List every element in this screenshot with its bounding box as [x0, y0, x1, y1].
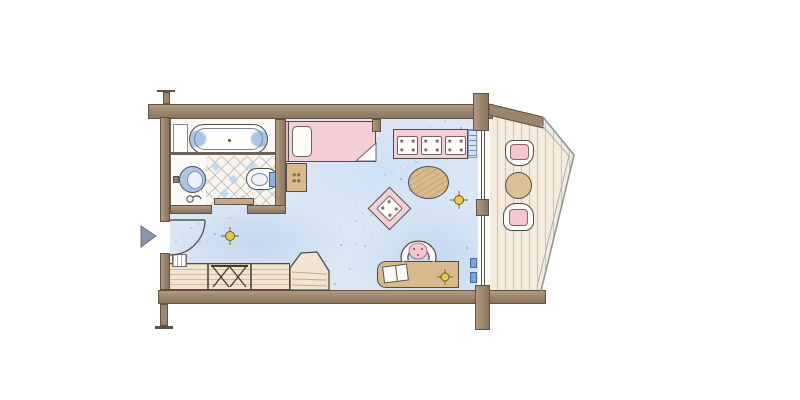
tub-platform-edge	[170, 152, 276, 155]
carpet-speckle	[415, 161, 417, 163]
door-fitting	[470, 258, 477, 268]
carpet-speckle	[199, 241, 201, 243]
carpet-speckle	[407, 167, 408, 168]
bathroom-east-wall	[275, 119, 286, 214]
carpet-speckle	[214, 233, 216, 235]
carpet-speckle	[400, 178, 402, 180]
carpet-speckle	[237, 220, 239, 222]
carpet-speckle	[190, 227, 192, 229]
carpet-speckle	[362, 213, 363, 214]
east-wall-mid-stub	[476, 199, 489, 216]
carpet-speckle	[349, 268, 351, 270]
washbasin	[179, 166, 206, 193]
carpet-speckle	[310, 268, 312, 270]
sideboard-divider	[250, 264, 252, 289]
toilet-bowl	[251, 173, 268, 186]
carpet-speckle	[213, 216, 215, 218]
balcony-glass-door-lower	[481, 216, 485, 285]
washbasin-tap	[173, 176, 179, 183]
carpet-speckle	[191, 248, 192, 249]
column-tick-cap	[157, 90, 175, 92]
carpet-speckle	[468, 120, 470, 122]
balcony-table	[505, 172, 532, 199]
carpet-speckle	[339, 228, 341, 230]
balcony-glass-door-upper	[481, 131, 485, 199]
carpet-speckle	[467, 270, 468, 271]
bathtub-drain	[228, 139, 231, 142]
washbasin-bowl	[187, 171, 203, 189]
west-wall-lower	[160, 253, 170, 290]
carpet-speckle	[295, 281, 297, 283]
balcony-deck	[489, 104, 575, 292]
carpet-speckle	[229, 217, 231, 219]
carpet-speckle	[222, 234, 224, 236]
sideboard	[168, 263, 290, 290]
sofa-cushion	[397, 136, 418, 155]
carpet-speckle	[369, 187, 371, 189]
carpet-speckle	[317, 252, 318, 253]
carpet-speckle	[302, 275, 303, 276]
carpet-speckle	[221, 207, 222, 208]
carpet-speckle	[355, 220, 357, 222]
sideboard-divider	[207, 264, 209, 289]
bed-pillow	[292, 126, 312, 157]
column-tick-top-left	[163, 92, 170, 104]
east-wall-bottom-column	[475, 285, 490, 330]
carpet-speckle	[206, 225, 207, 226]
bathroom-south-wall-right	[247, 205, 286, 214]
carpet-speckle	[392, 173, 393, 174]
coffee-table	[408, 166, 449, 199]
bed	[283, 121, 376, 162]
carpet-speckle	[384, 174, 386, 176]
carpet-speckle	[356, 243, 357, 244]
carpet-speckle	[175, 241, 177, 243]
carpet-speckle	[341, 255, 342, 256]
carpet-speckle	[318, 267, 320, 269]
carpet-speckle	[446, 159, 447, 160]
north-wall	[148, 104, 493, 119]
entry-mat	[172, 254, 187, 267]
radiator	[468, 129, 477, 158]
carpet-speckle	[333, 261, 335, 263]
open-book	[382, 264, 409, 284]
bathroom-sliding-door	[214, 198, 254, 205]
tile-accent	[220, 189, 230, 199]
sofa	[393, 129, 468, 159]
carpet-speckle	[399, 166, 401, 168]
column-tick-bottom-left	[160, 304, 168, 326]
balcony-chair-north	[505, 140, 534, 166]
tile-accent	[211, 162, 221, 172]
carpet-speckle	[198, 223, 200, 225]
carpet-speckle	[466, 247, 468, 249]
sofa-cushion	[421, 136, 442, 155]
carpet-speckle	[332, 234, 333, 235]
carpet-speckle	[371, 236, 372, 237]
balcony-chair-cushion	[509, 209, 528, 226]
carpet-speckle	[354, 205, 356, 207]
toilet	[246, 168, 278, 190]
carpet-speckle	[183, 235, 185, 237]
bathroom-south-wall-left	[170, 205, 212, 214]
carpet-speckle	[325, 260, 327, 262]
carpet-speckle	[326, 272, 327, 273]
balcony-chair-south	[503, 203, 534, 231]
tub-shelf	[173, 124, 188, 153]
sofa-cushion	[445, 136, 466, 155]
west-wall-upper	[160, 117, 170, 222]
book-spine	[395, 266, 398, 281]
carpet-speckle	[348, 247, 350, 249]
east-wall-top-column	[473, 93, 489, 131]
balcony-chair-cushion	[510, 144, 529, 160]
floor-plan-canvas	[0, 0, 800, 400]
armchair-cushion	[376, 195, 403, 222]
wall-pier	[372, 119, 381, 132]
carpet-speckle	[370, 214, 372, 216]
column-tick-foot	[155, 326, 173, 329]
carpet-speckle	[444, 120, 446, 122]
carpet-speckle	[459, 274, 461, 276]
tile-accent	[229, 175, 239, 185]
door-fitting	[470, 272, 477, 283]
carpet-speckle	[334, 283, 336, 285]
desk	[377, 261, 459, 288]
carpet-speckle	[207, 240, 209, 242]
carpet-speckle	[364, 245, 366, 247]
carpet-speckle	[429, 126, 431, 128]
nightstand	[286, 163, 307, 192]
carpet-speckle	[363, 225, 365, 227]
carpet-speckle	[347, 221, 348, 222]
entrance-arrow	[141, 226, 156, 247]
carpet-speckle	[474, 252, 476, 254]
carpet-speckle	[340, 244, 342, 246]
bathtub	[189, 124, 268, 154]
